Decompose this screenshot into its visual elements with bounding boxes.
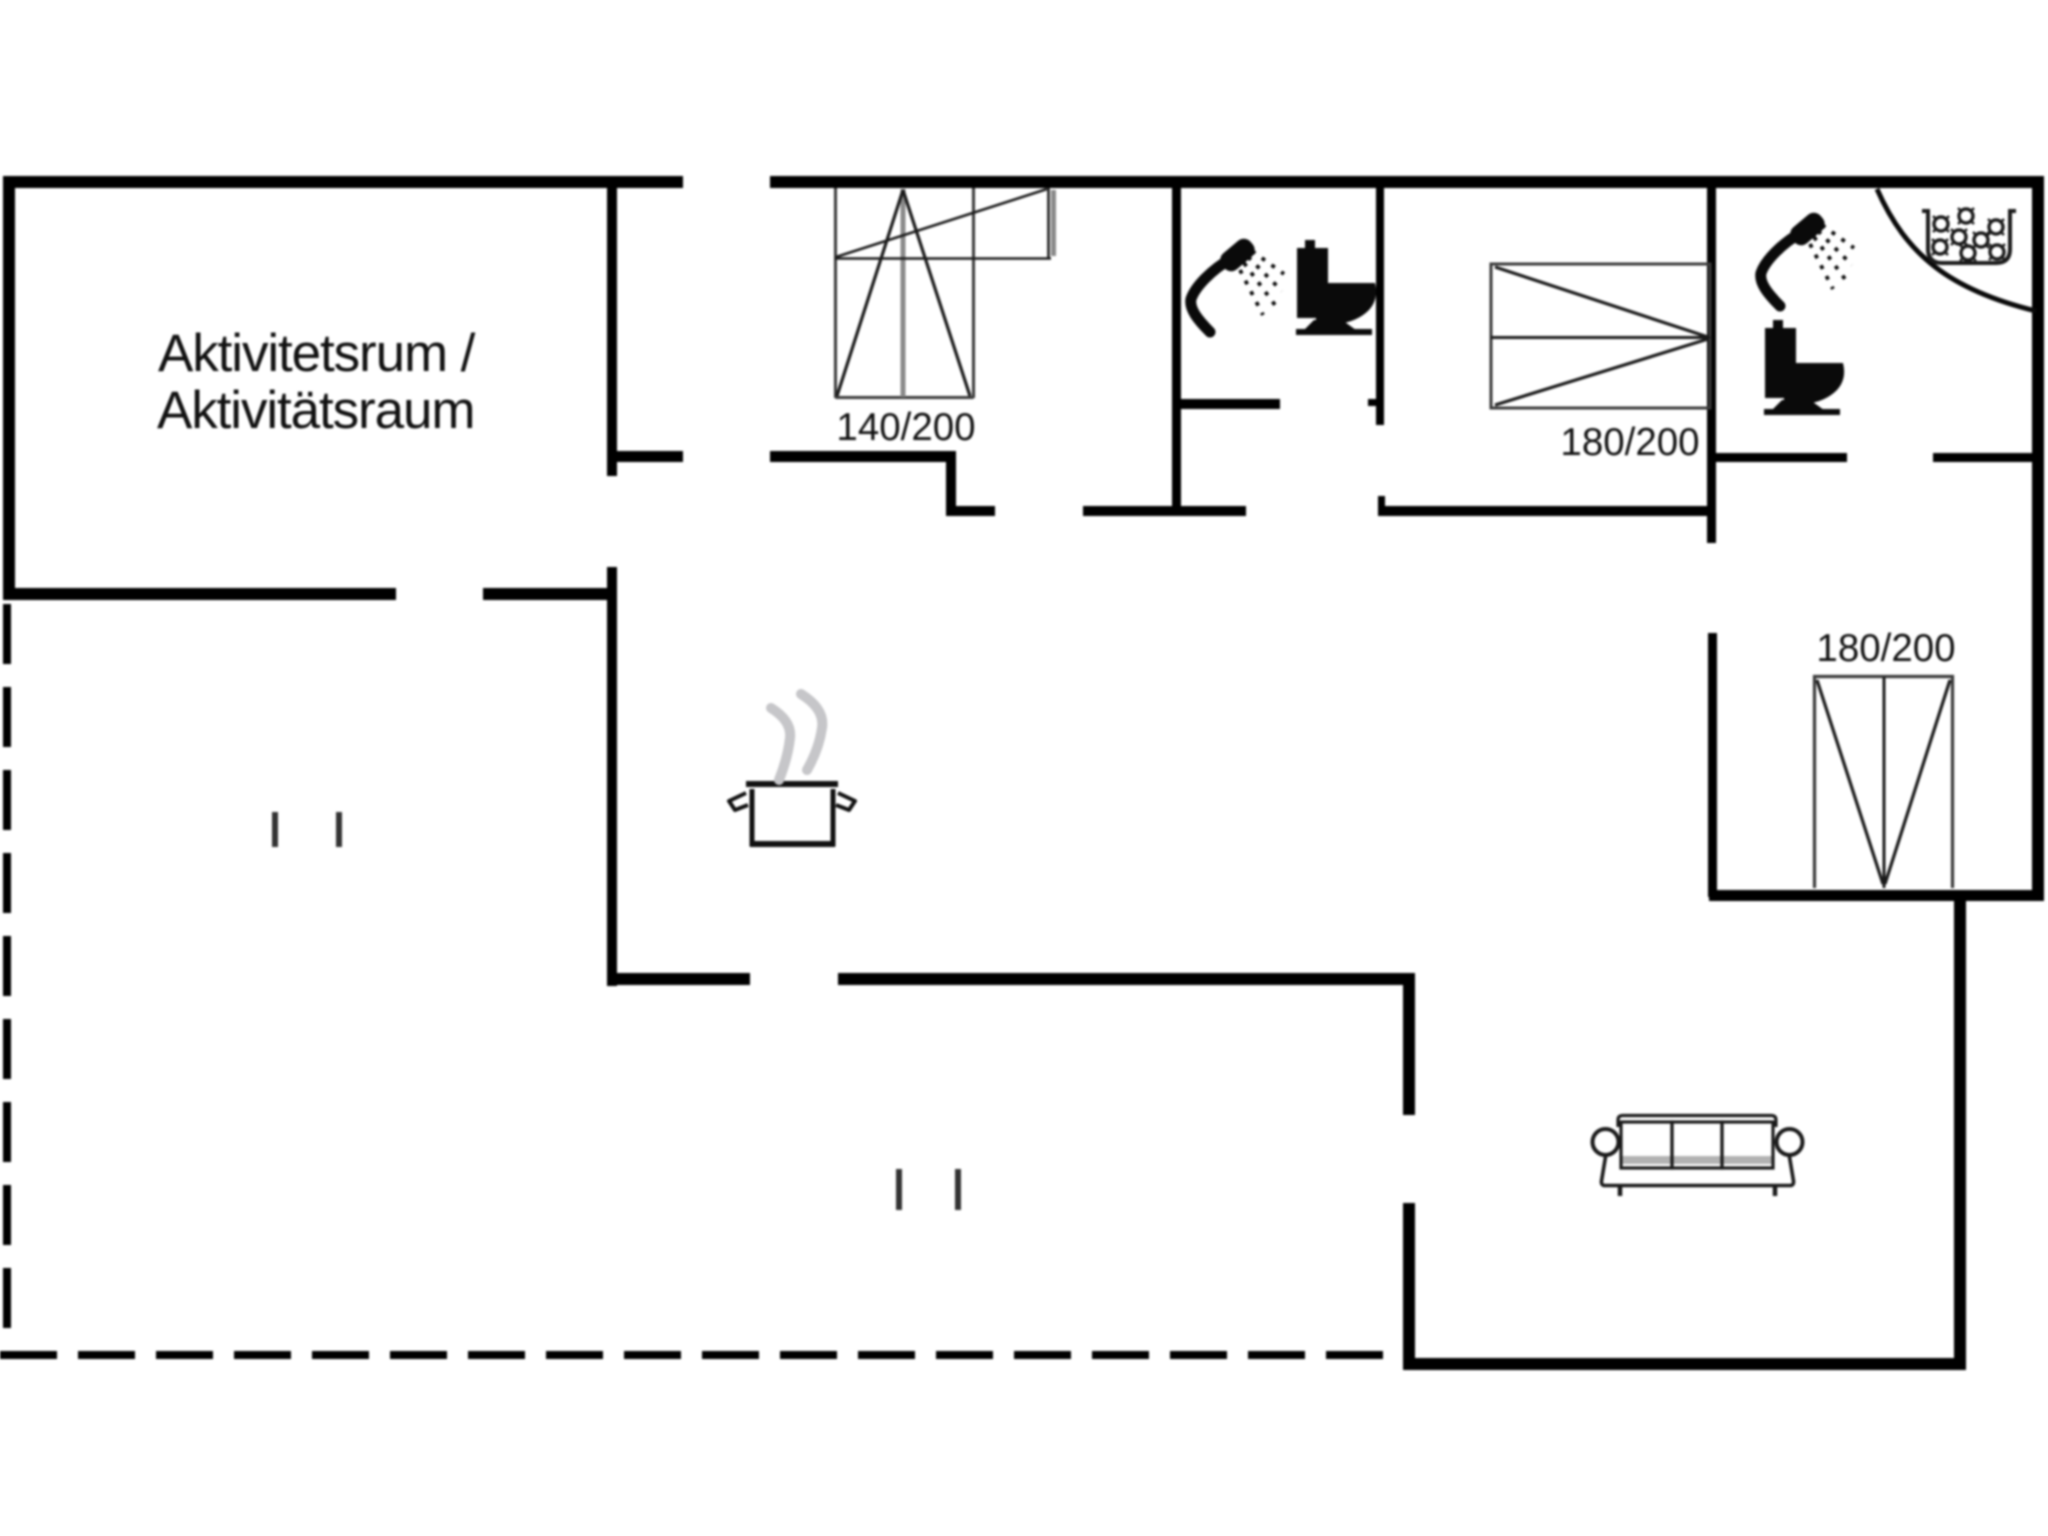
- svg-text:140/200: 140/200: [836, 406, 975, 449]
- svg-text:180/200: 180/200: [1560, 421, 1699, 464]
- svg-text:Aktivitetsrum /: Aktivitetsrum /: [158, 324, 476, 383]
- svg-text:180/200: 180/200: [1816, 627, 1955, 670]
- svg-text:Aktivitätsraum: Aktivitätsraum: [157, 381, 474, 440]
